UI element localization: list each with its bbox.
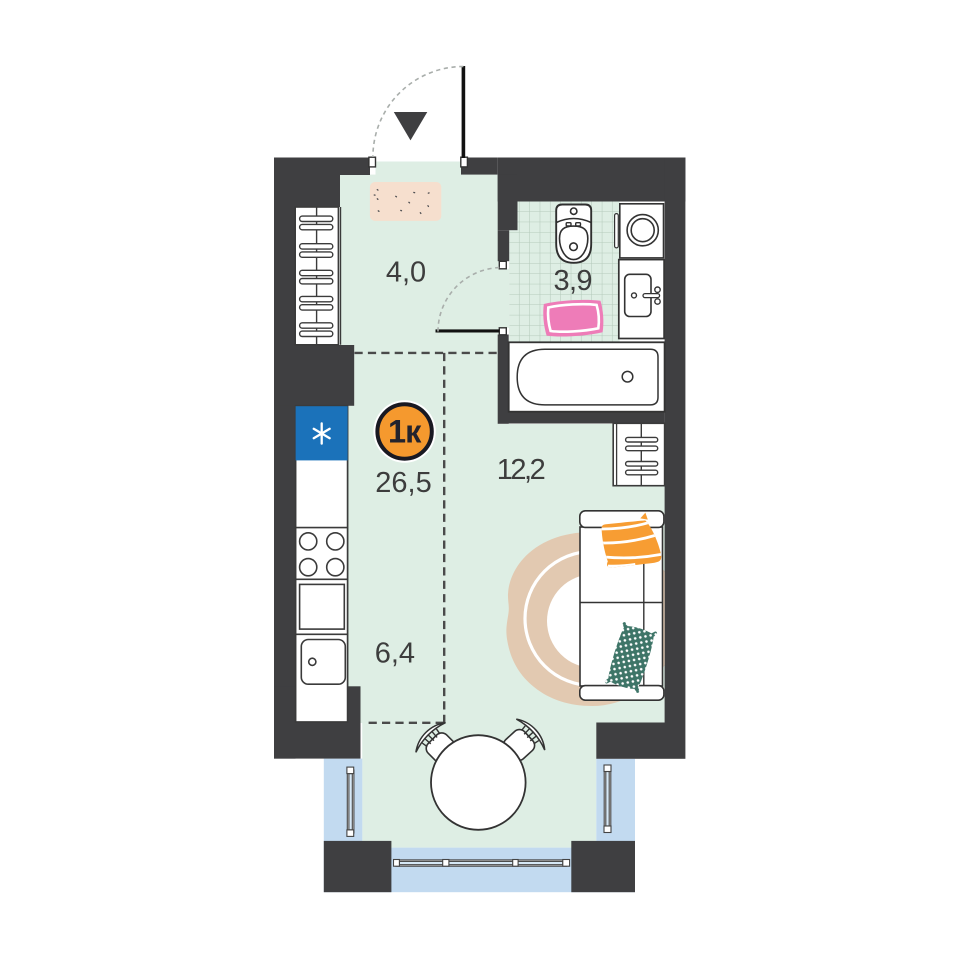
svg-text:1к: 1к bbox=[388, 414, 422, 450]
svg-text:6,4: 6,4 bbox=[375, 638, 415, 670]
svg-text:3,9: 3,9 bbox=[553, 265, 592, 297]
svg-text:26,5: 26,5 bbox=[375, 467, 431, 499]
svg-text:12,2: 12,2 bbox=[497, 454, 545, 486]
svg-text:4,0: 4,0 bbox=[386, 257, 426, 289]
